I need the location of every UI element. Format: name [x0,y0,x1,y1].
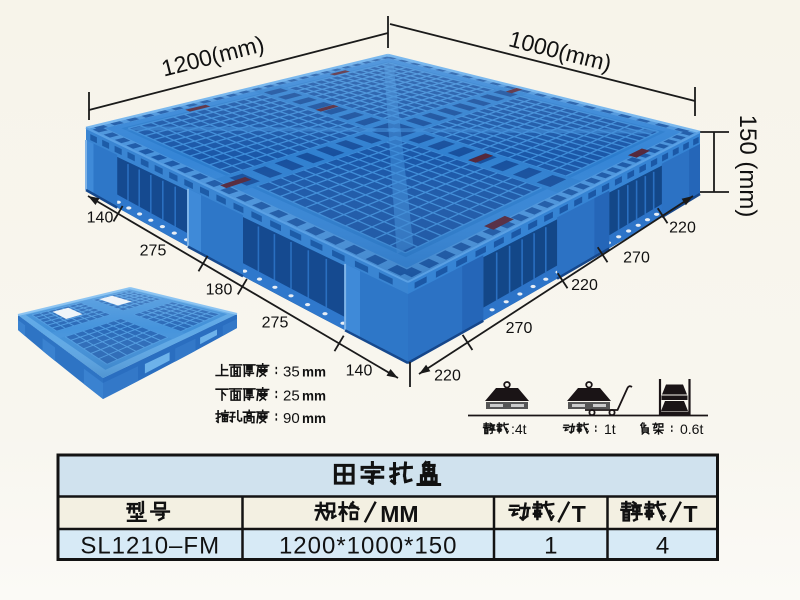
svg-text:220: 220 [434,368,461,385]
svg-text:220: 220 [571,277,598,294]
svg-text::4t: :4t [511,421,527,437]
svg-text:35: 35 [283,364,300,381]
svg-text:1t: 1t [604,421,616,437]
svg-text:270: 270 [623,250,650,267]
svg-text:SL1210–FM: SL1210–FM [80,533,220,560]
svg-text:4: 4 [656,533,669,560]
svg-text:mm: mm [302,389,326,404]
svg-text:275: 275 [262,315,289,332]
svg-text:MM: MM [380,501,418,527]
svg-text:mm: mm [302,365,326,380]
svg-text:T: T [572,501,586,527]
svg-text:150 (mm): 150 (mm) [734,115,761,218]
svg-text:1200*1000*150: 1200*1000*150 [279,533,458,560]
svg-text:140: 140 [87,210,114,227]
svg-text:90: 90 [283,410,300,427]
svg-text:T: T [684,501,698,527]
svg-text:25: 25 [283,388,300,405]
svg-text:mm: mm [302,411,326,426]
svg-text:275: 275 [140,243,167,260]
svg-text:270: 270 [506,320,533,337]
svg-text:140: 140 [346,363,373,380]
svg-text:0.6t: 0.6t [680,421,703,437]
svg-text:1: 1 [544,533,557,560]
svg-text:180: 180 [206,282,233,299]
svg-text:220: 220 [669,220,696,237]
